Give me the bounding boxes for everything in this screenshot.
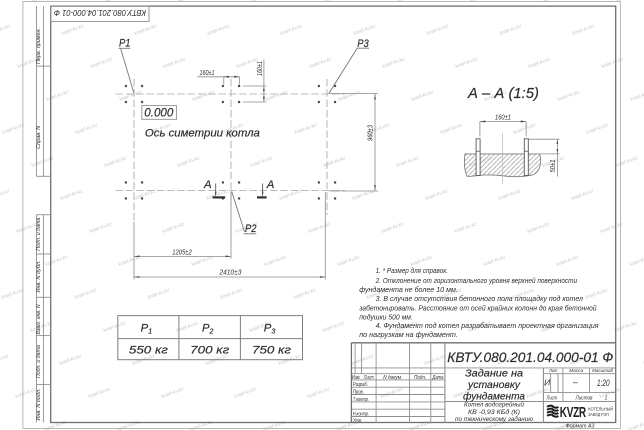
svg-text:А: А (203, 179, 212, 191)
svg-text:Лит: Лит (548, 368, 557, 373)
svg-text:160±1: 160±1 (495, 112, 511, 121)
svg-text:Разраб.: Разраб. (353, 382, 368, 388)
svg-text:забетонировать. Расстояние от: забетонировать. Расстояние от осей крайн… (358, 303, 596, 312)
svg-text:Перв. примен.: Перв. примен. (36, 28, 42, 64)
svg-text:3. В случае отсутствия бетонно: 3. В случае отсутствия бетонного пола пл… (376, 294, 583, 303)
svg-text:А: А (266, 179, 275, 191)
svg-text:И: И (544, 378, 551, 388)
svg-text:960±3: 960±3 (366, 125, 375, 141)
svg-text:А – А (1:5): А – А (1:5) (467, 86, 539, 102)
svg-text:Инв. N дубл.: Инв. N дубл. (36, 261, 42, 293)
svg-text:Инв. N подл.: Инв. N подл. (36, 389, 42, 421)
svg-text:Лист: Лист (363, 375, 374, 381)
svg-text:фундамента не более 10 мм.: фундамента не более 10 мм. (359, 285, 458, 294)
svg-text:Задание на: Задание на (465, 367, 523, 379)
svg-text:700 кг: 700 кг (190, 345, 229, 357)
svg-text:КВТУ.080.201.04.000-01 Ф: КВТУ.080.201.04.000-01 Ф (447, 350, 613, 365)
svg-text:Пров.: Пров. (353, 389, 364, 395)
svg-text:2410±3: 2410±3 (218, 268, 241, 277)
svg-text:Формат А3: Формат А3 (566, 424, 595, 430)
svg-text:KVZR: KVZR (560, 404, 586, 421)
svg-text:550 кг: 550 кг (129, 345, 168, 357)
svg-text:Котел водогрейный: Котел водогрейный (464, 402, 525, 409)
svg-text:160±1: 160±1 (255, 61, 264, 76)
svg-text:Дата: Дата (432, 375, 444, 381)
svg-text:Взам. инв. N: Взам. инв. N (36, 304, 42, 334)
svg-text:по нагрузкам на фундамент.: по нагрузкам на фундамент. (359, 330, 458, 339)
svg-text:Изм.: Изм. (352, 375, 361, 381)
svg-text:Листов: Листов (575, 396, 593, 402)
svg-text:Н.контр.: Н.контр. (353, 411, 369, 417)
svg-text:50±1: 50±1 (548, 160, 557, 173)
svg-text:Ось симетрии котла: Ось симетрии котла (145, 127, 260, 139)
svg-text:ЗАВОД РЭП: ЗАВОД РЭП (588, 412, 609, 417)
svg-text:установку: установку (467, 379, 521, 391)
svg-text:160±1: 160±1 (200, 68, 215, 77)
svg-text:N докум.: N докум. (383, 375, 402, 381)
svg-text:1: 1 (605, 396, 608, 402)
svg-text:КВТУ.080.201.04.000-01 Ф: КВТУ.080.201.04.000-01 Ф (54, 8, 146, 17)
svg-text:Подп. и дата: Подп. и дата (36, 345, 42, 378)
svg-text:Т.контр.: Т.контр. (353, 397, 369, 403)
svg-text:Подп.: Подп. (414, 375, 426, 381)
svg-text:1. * Размер для справок.: 1. * Размер для справок. (376, 266, 448, 275)
svg-text:Справ. N: Справ. N (36, 126, 42, 149)
svg-text:1205±2: 1205±2 (172, 247, 192, 256)
svg-text:по техническому заданию: по техническому заданию (455, 417, 534, 423)
svg-text:Масса: Масса (569, 368, 583, 373)
svg-text:–: – (572, 377, 578, 387)
svg-text:0.000: 0.000 (144, 106, 173, 120)
svg-text:Лист: Лист (546, 396, 558, 402)
svg-text:КОТЕЛЬНЫЙ: КОТЕЛЬНЫЙ (588, 407, 613, 412)
svg-text:4. Фундамент под котел разраба: 4. Фундамент под котел разрабатывает про… (376, 321, 599, 330)
svg-text:Масштаб: Масштаб (592, 368, 613, 373)
svg-text:КВ -0,93 КБд (К): КВ -0,93 КБд (К) (468, 410, 520, 416)
svg-text:Подп. и дата: Подп. и дата (36, 218, 42, 251)
svg-text:Утв.: Утв. (353, 418, 362, 424)
svg-text:750 кг: 750 кг (252, 345, 291, 357)
svg-text:P1: P1 (119, 37, 131, 49)
svg-text:2. Отклонение от горизонтально: 2. Отклонение от горизонтального уровня … (375, 276, 577, 285)
svg-text:фундамента: фундамента (463, 390, 525, 402)
svg-text:1:20: 1:20 (597, 378, 610, 388)
